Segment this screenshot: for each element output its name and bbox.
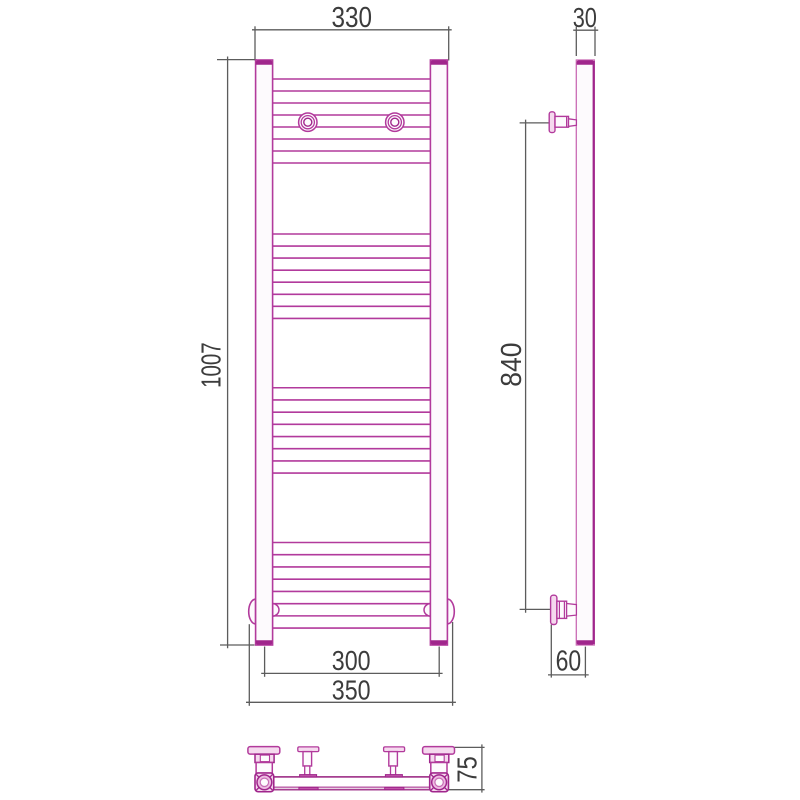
svg-text:330: 330 — [332, 2, 373, 34]
svg-text:350: 350 — [332, 675, 371, 706]
svg-text:300: 300 — [332, 645, 371, 676]
svg-text:1007: 1007 — [195, 342, 226, 388]
svg-text:75: 75 — [452, 756, 483, 783]
svg-text:30: 30 — [573, 2, 597, 33]
svg-text:840: 840 — [496, 343, 528, 387]
svg-text:60: 60 — [556, 645, 582, 677]
